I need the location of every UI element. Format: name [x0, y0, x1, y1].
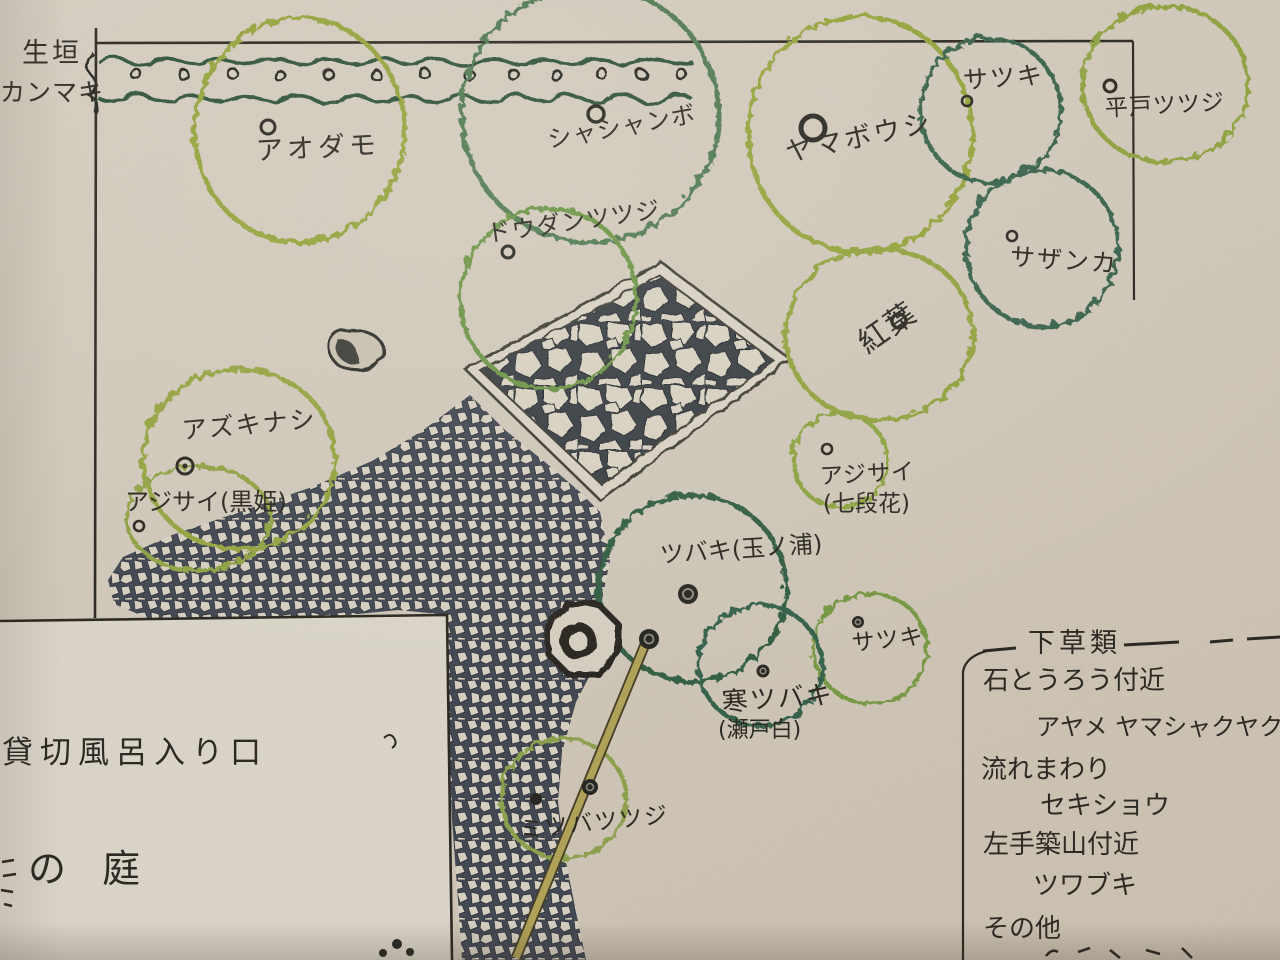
label-ajisai-shichidanka-variety: (七段花) — [823, 493, 910, 516]
label-yamaboushi: ヤマボウシ — [783, 109, 935, 167]
label-satsuki-top: サツキ — [962, 62, 1045, 93]
understory-line-ishitourou: 石とうろう付近 — [983, 668, 1165, 694]
label-kan-tsubaki-variety: (瀬戸白) — [718, 720, 801, 742]
label-ajisai-shichidanka: アジサイ — [819, 461, 915, 489]
plan-labels: 生垣 カンマキ アオダモ シャシャンボ ヤマボウシ サツキ 平戸ツツジ ドウダン… — [0, 0, 1280, 960]
label-momiji: 紅葉 — [853, 298, 923, 359]
label-azukinashi: アズキナシ — [181, 406, 318, 443]
label-hedge-top: 生垣 — [22, 40, 82, 67]
label-hirado-tsutsuji: 平戸ツツジ — [1104, 92, 1225, 121]
understory-heading: 下草類 — [1028, 630, 1121, 657]
garden-plan: 生垣 カンマキ アオダモ シャシャンボ ヤマボウシ サツキ 平戸ツツジ ドウダン… — [0, 0, 1280, 960]
card-line-garden: の 庭 — [28, 850, 152, 888]
label-mitsuba-tsutsuji: ミツバツツジ — [519, 804, 671, 843]
label-satsuki-mid: サツキ — [851, 626, 925, 656]
understory-line-nagare: 流れまわり — [981, 757, 1111, 783]
label-sazanka: サザンカ — [1009, 244, 1118, 276]
understory-line-tsukiyama: 左手築山付近 — [983, 832, 1139, 858]
label-kan-tsubaki: 寒ツバキ — [721, 682, 835, 716]
label-hedge-bottom: カンマキ — [0, 80, 104, 105]
label-aodamo: アオダモ — [255, 132, 380, 165]
card-line-bath-entrance: 貸切風呂入り口 — [2, 738, 268, 769]
understory-line-ayame: アヤメ ヤマシャクヤク — [1036, 715, 1280, 739]
understory-line-tsuwabuki: ツワブキ — [1033, 873, 1137, 899]
understory-line-sonota: その他 — [983, 916, 1061, 942]
label-tsubaki-tamanoura: ツバキ(玉ノ浦) — [659, 532, 823, 567]
understory-line-sekishou: セキショウ — [1040, 793, 1170, 819]
label-shashanbo: シャシャンボ — [546, 102, 698, 152]
label-ajisai-kurohime: アジサイ(黒姫) — [125, 490, 287, 514]
label-doudan-tsutsuji: ドウダンツツジ — [485, 198, 662, 246]
